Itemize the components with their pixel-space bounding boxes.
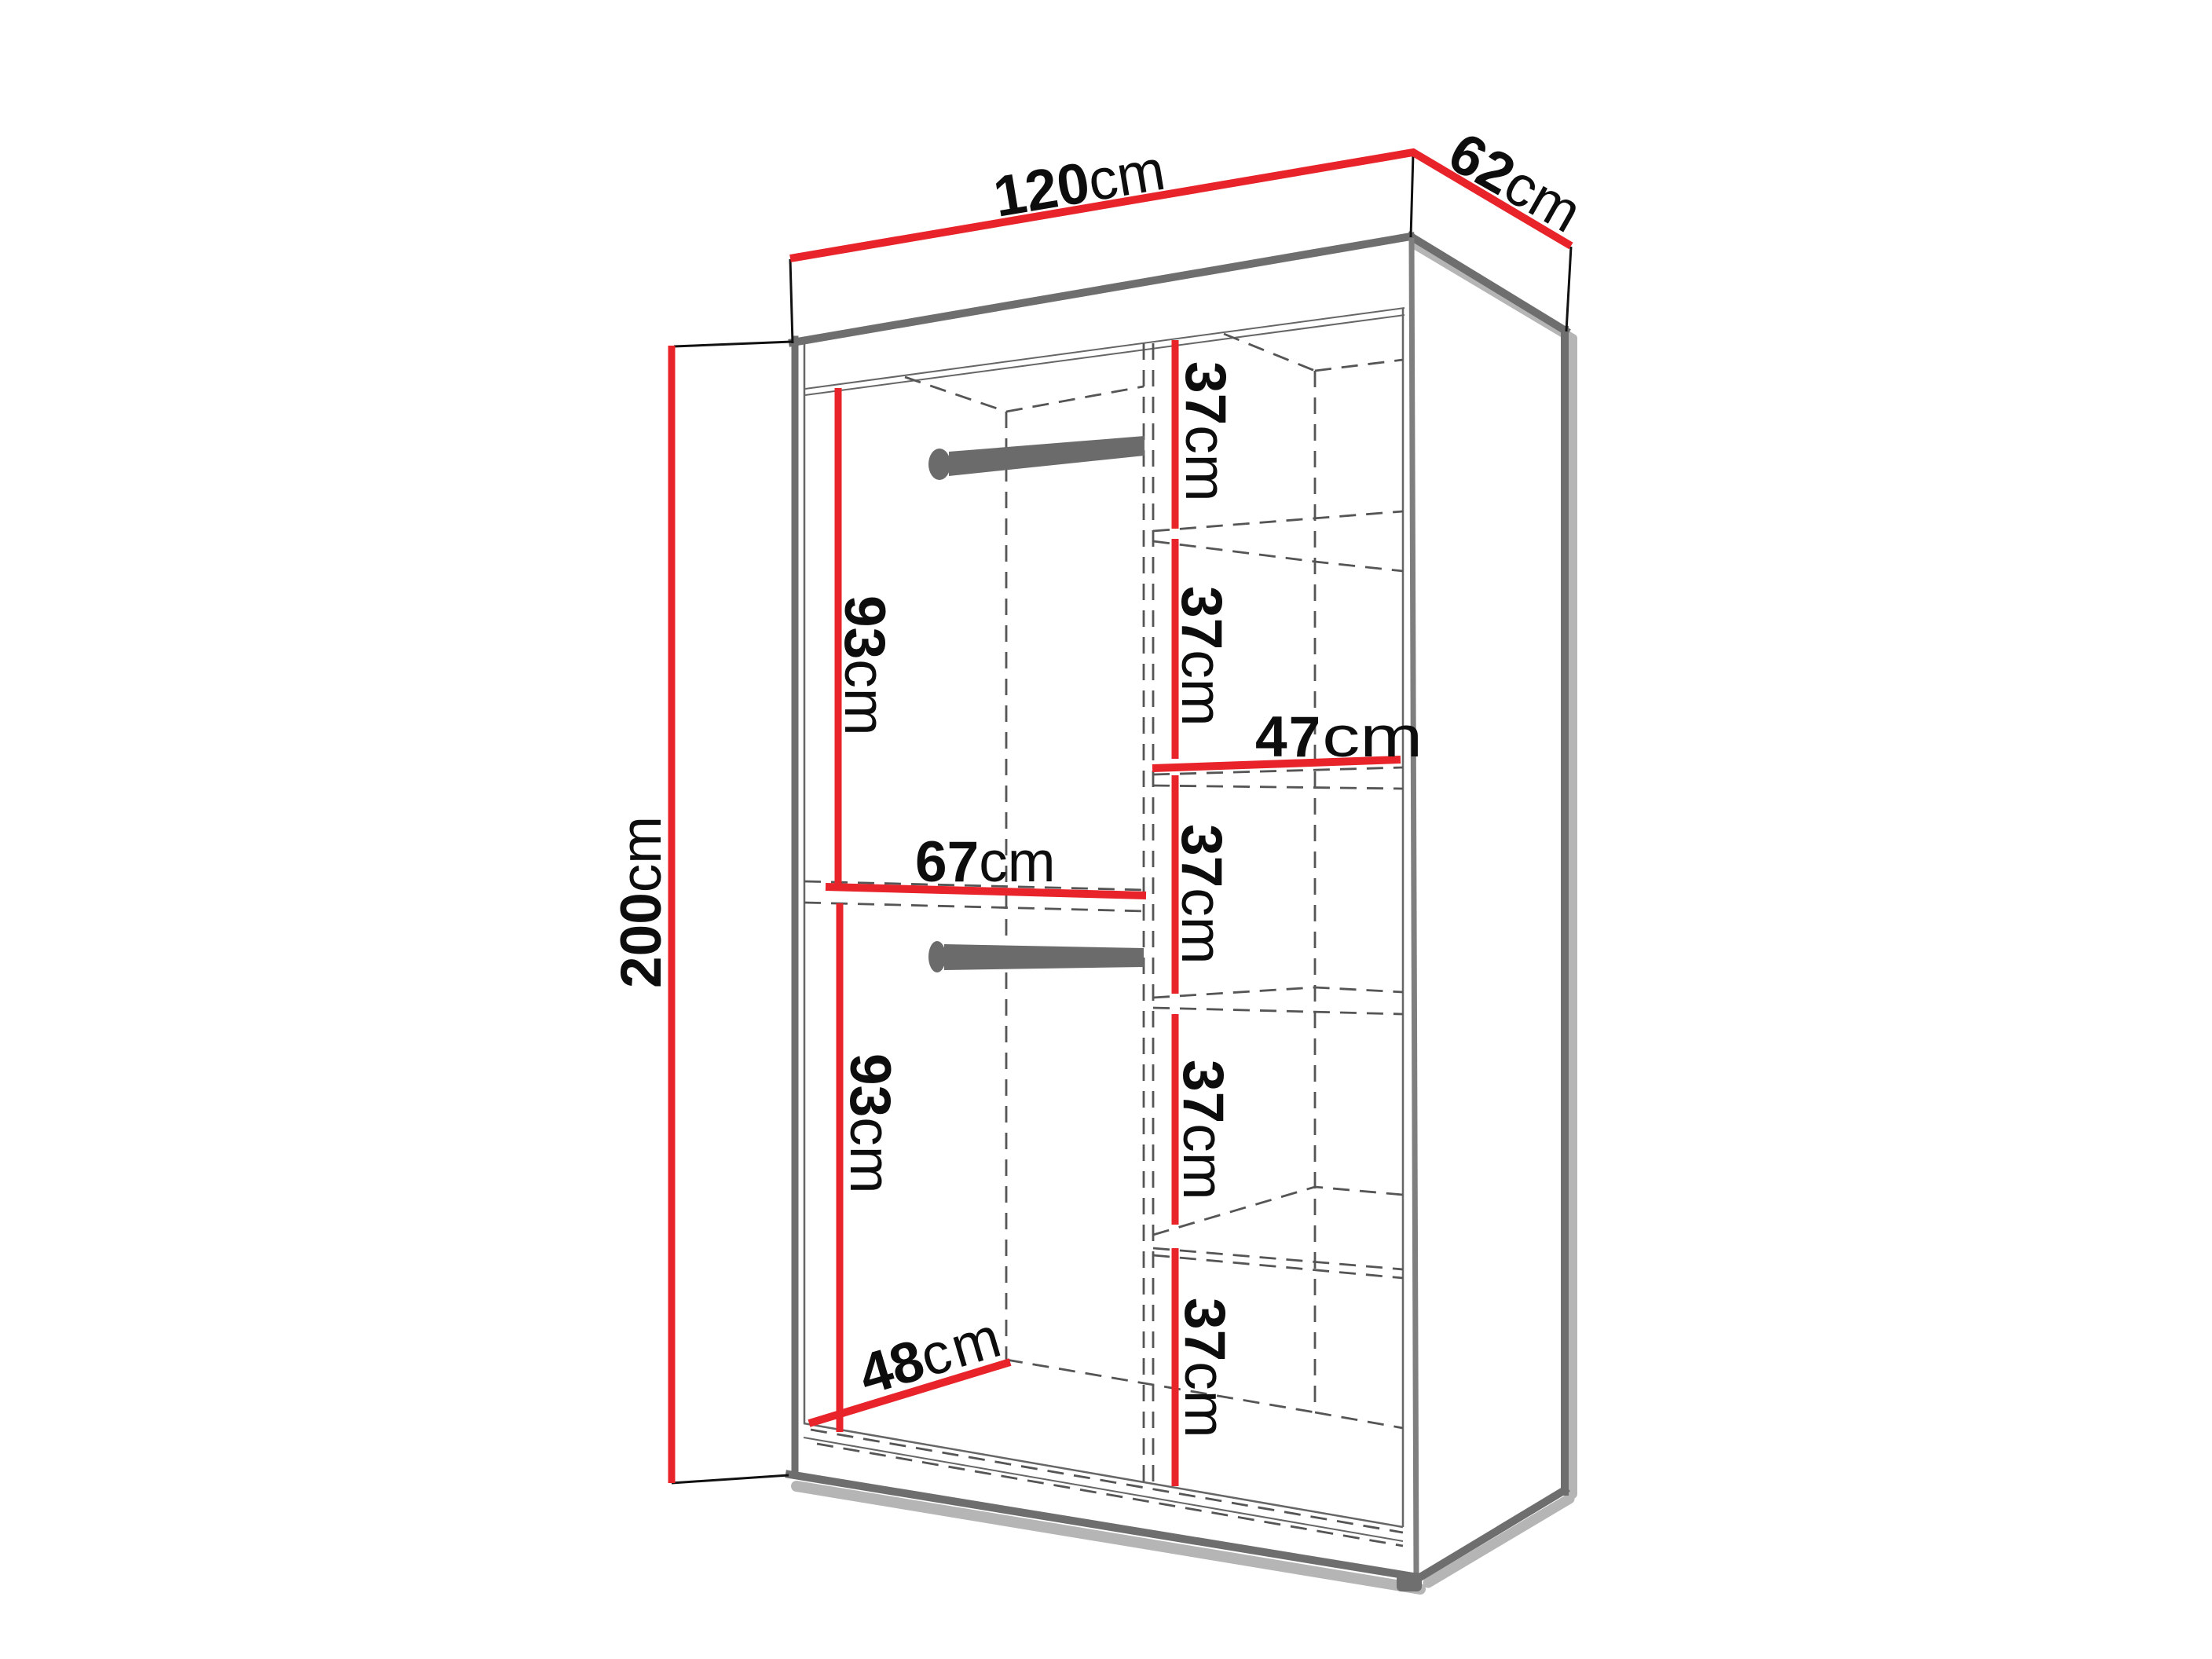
svg-text:37cm: 37cm: [1170, 586, 1233, 727]
svg-text:37cm: 37cm: [1171, 1060, 1235, 1200]
svg-text:37cm: 37cm: [1170, 824, 1233, 965]
svg-text:37cm: 37cm: [1173, 1298, 1236, 1438]
svg-text:37cm: 37cm: [1174, 361, 1237, 502]
svg-text:47cm: 47cm: [1255, 705, 1423, 769]
svg-text:200cm: 200cm: [610, 816, 673, 988]
svg-text:93cm: 93cm: [833, 595, 896, 736]
svg-text:67cm: 67cm: [915, 830, 1056, 894]
svg-text:93cm: 93cm: [838, 1053, 902, 1194]
